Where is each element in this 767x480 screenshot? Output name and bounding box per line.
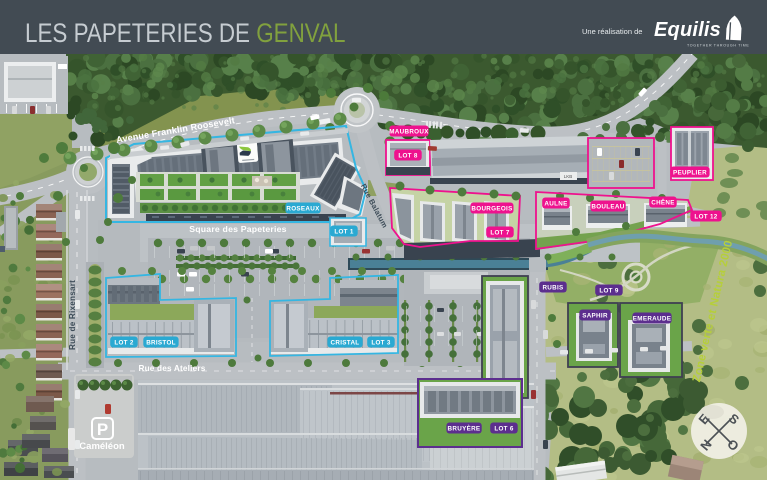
svg-text:BOURGEOIS: BOURGEOIS	[471, 205, 512, 212]
svg-text:Rue de Rixensart: Rue de Rixensart	[68, 280, 77, 350]
svg-text:Rue des Ateliers: Rue des Ateliers	[138, 364, 205, 373]
svg-text:BRISTOL: BRISTOL	[146, 339, 176, 346]
svg-text:EMERAUDE: EMERAUDE	[633, 315, 671, 322]
svg-text:RUBIS: RUBIS	[542, 284, 563, 291]
svg-text:LOT 8: LOT 8	[398, 152, 418, 159]
svg-text:SAPHIR: SAPHIR	[582, 312, 608, 319]
svg-text:MAUBROUX: MAUBROUX	[389, 128, 429, 135]
svg-text:LOT 9: LOT 9	[599, 287, 619, 294]
svg-text:P: P	[97, 420, 108, 439]
svg-text:Square des Papeteries: Square des Papeteries	[189, 224, 286, 234]
svg-text:BOULEAU: BOULEAU	[591, 203, 624, 210]
svg-text:LKB: LKB	[564, 174, 573, 179]
svg-text:Caméléon: Caméléon	[79, 441, 125, 452]
svg-text:LOT 3: LOT 3	[371, 339, 391, 346]
svg-text:AULNE: AULNE	[544, 200, 567, 207]
svg-text:LOT 12: LOT 12	[694, 213, 717, 220]
svg-text:CRISTAL: CRISTAL	[331, 339, 360, 346]
svg-text:LOT 2: LOT 2	[114, 339, 134, 346]
svg-text:LOT 1: LOT 1	[334, 228, 354, 235]
svg-text:PEUPLIER: PEUPLIER	[673, 169, 707, 176]
svg-text:LOT 7: LOT 7	[490, 229, 510, 236]
svg-text:CHÊNE: CHÊNE	[651, 197, 675, 206]
svg-text:ROSEAUX: ROSEAUX	[286, 205, 320, 212]
svg-text:LOT 6: LOT 6	[494, 425, 514, 432]
svg-text:BRUYÈRE: BRUYÈRE	[448, 423, 481, 432]
